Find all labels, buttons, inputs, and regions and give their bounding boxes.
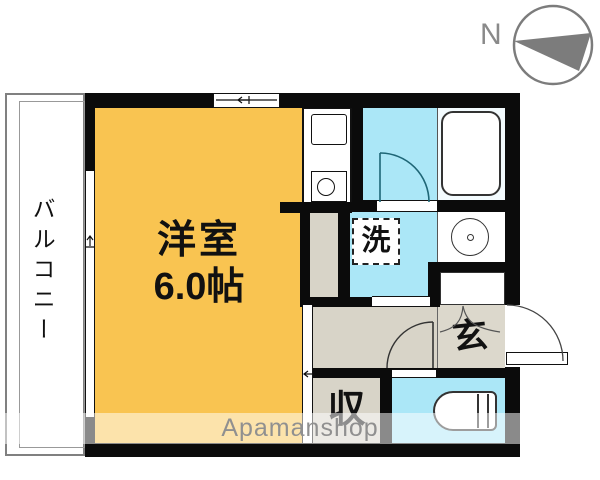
hall-door-arc <box>387 322 433 368</box>
watermark-band: Apamanshop <box>0 413 600 444</box>
window-balcony-arrow <box>86 236 94 247</box>
sliding-door-arrow <box>304 371 312 377</box>
genkan-fan-right <box>463 306 500 332</box>
bathroom-door-arc <box>380 153 429 202</box>
floor-plan: バルコニー 洋室 6.0帖 洗 玄 収 <box>0 0 600 480</box>
genkan-fan-left <box>440 306 463 332</box>
compass-n-label: N <box>480 18 502 52</box>
watermark-text: Apamanshop <box>221 414 378 443</box>
front-door-arc <box>507 305 563 361</box>
window-top-arrow <box>238 96 249 104</box>
plan-overlay <box>0 0 600 480</box>
